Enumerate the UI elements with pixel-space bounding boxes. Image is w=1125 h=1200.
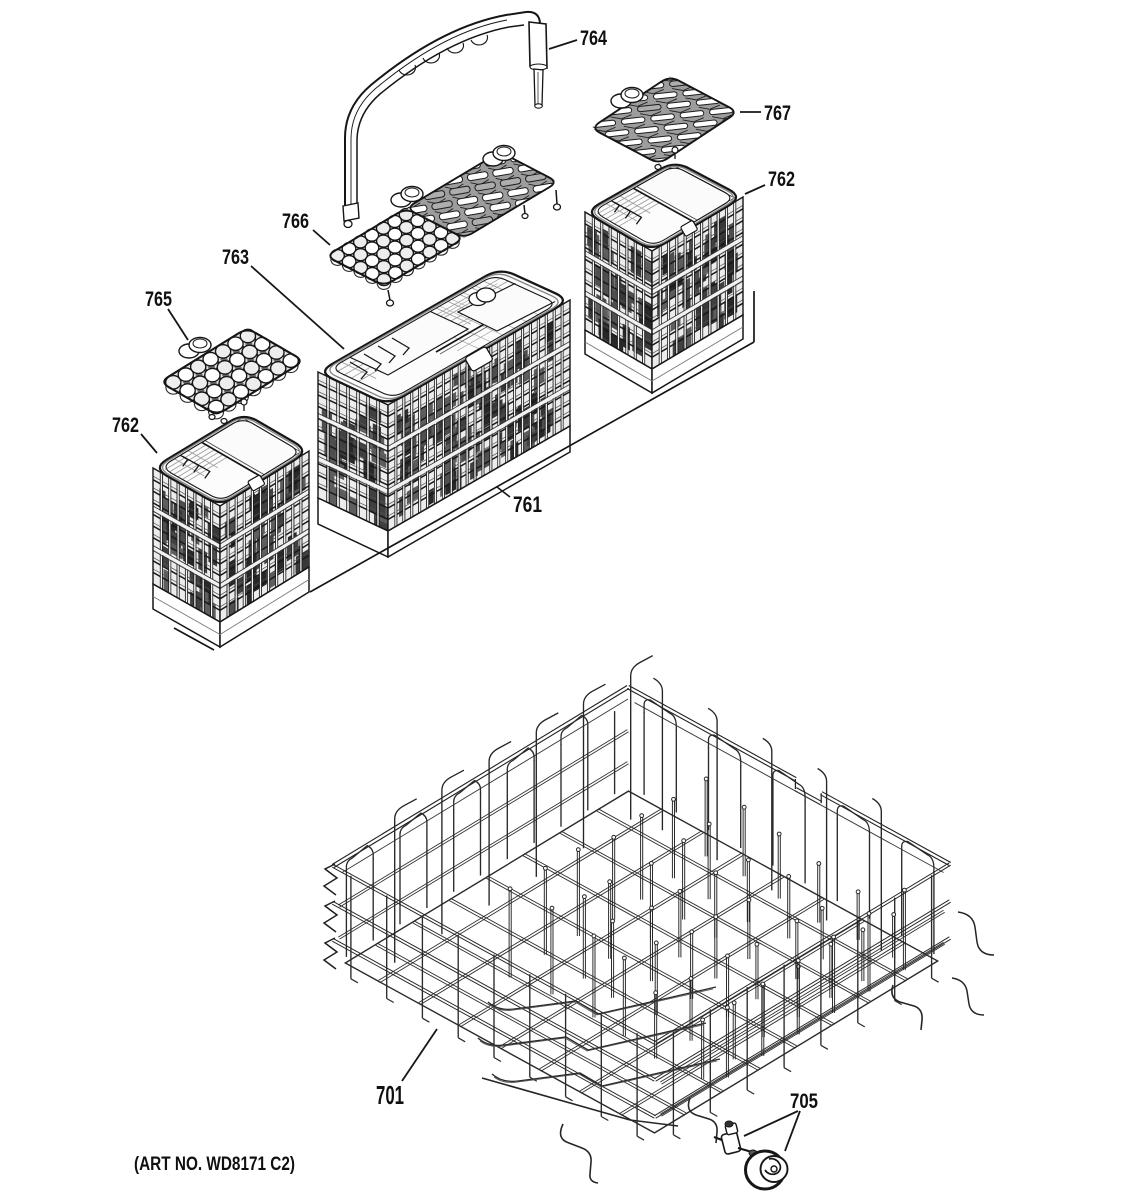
svg-text:762: 762 <box>112 414 139 437</box>
svg-text:765: 765 <box>145 288 172 311</box>
svg-text:761: 761 <box>513 492 542 517</box>
svg-text:(ART NO. WD8171 C2): (ART NO. WD8171 C2) <box>134 1154 295 1175</box>
svg-text:705: 705 <box>790 1090 818 1113</box>
svg-text:701: 701 <box>376 1080 404 1110</box>
svg-text:764: 764 <box>580 27 607 50</box>
svg-text:766: 766 <box>282 210 309 233</box>
svg-text:767: 767 <box>764 102 791 125</box>
svg-text:762: 762 <box>768 168 795 191</box>
svg-text:763: 763 <box>222 246 249 269</box>
